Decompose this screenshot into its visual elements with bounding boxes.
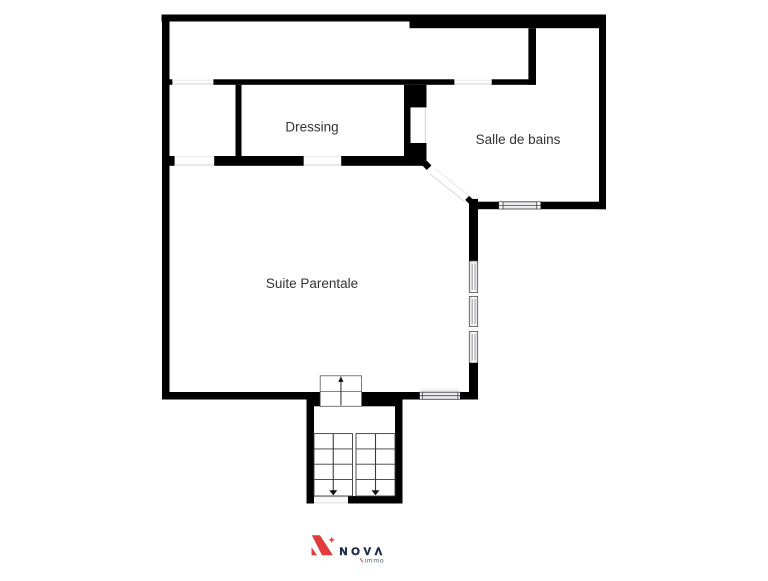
svg-text:NOVΛ: NOVΛ [340, 546, 386, 558]
svg-text:Dressing: Dressing [285, 120, 338, 135]
svg-text:immo: immo [365, 557, 385, 564]
svg-text:Salle de bains: Salle de bains [476, 132, 561, 147]
svg-text:Suite Parentale: Suite Parentale [266, 276, 358, 291]
